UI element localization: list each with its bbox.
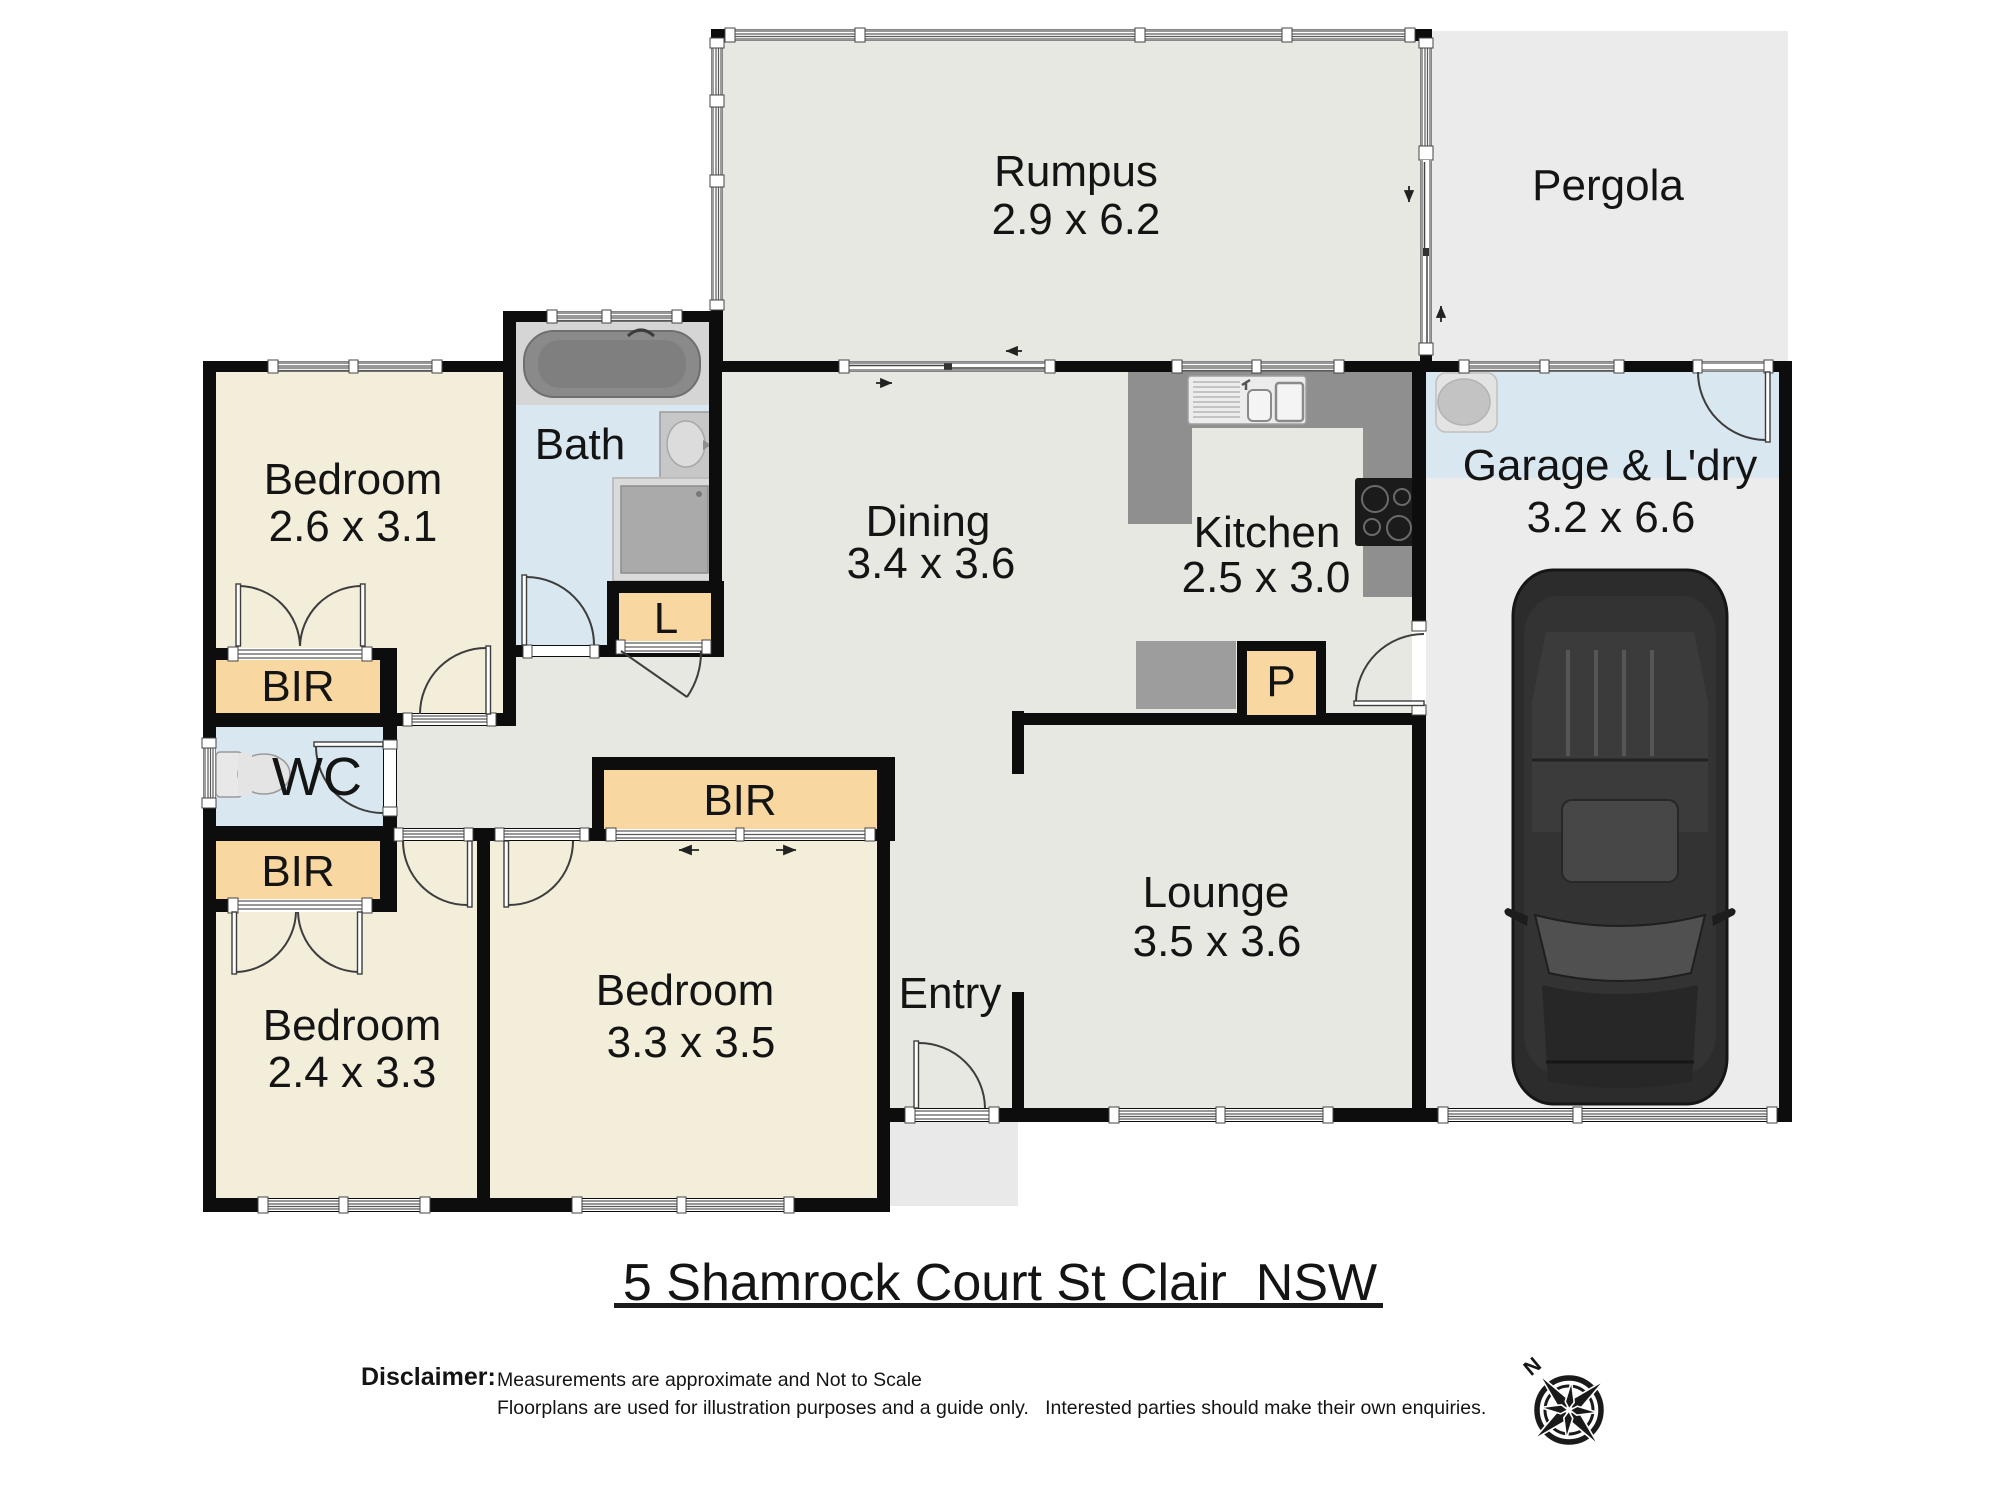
svg-text:Floorplans are used for illust: Floorplans are used for illustration pur… bbox=[497, 1397, 1486, 1419]
svg-text:BIR: BIR bbox=[261, 847, 334, 896]
svg-text:Bath: Bath bbox=[535, 420, 626, 469]
svg-text:WC: WC bbox=[272, 747, 362, 807]
svg-text:BIR: BIR bbox=[261, 662, 334, 711]
svg-text:Measurements are approximate a: Measurements are approximate and Not to … bbox=[497, 1369, 922, 1391]
svg-text:2.9 x 6.2: 2.9 x 6.2 bbox=[992, 195, 1161, 244]
svg-text:Kitchen: Kitchen bbox=[1194, 508, 1341, 557]
svg-text:Bedroom: Bedroom bbox=[263, 1001, 442, 1050]
svg-text:3.2 x 6.6: 3.2 x 6.6 bbox=[1527, 493, 1696, 542]
svg-text:3.3 x 3.5: 3.3 x 3.5 bbox=[607, 1018, 776, 1067]
svg-text:3.5 x 3.6: 3.5 x 3.6 bbox=[1133, 917, 1302, 966]
svg-text:Pergola: Pergola bbox=[1532, 161, 1684, 210]
svg-text:3.4 x 3.6: 3.4 x 3.6 bbox=[847, 539, 1016, 588]
svg-text:Rumpus: Rumpus bbox=[994, 147, 1158, 196]
svg-text:Bedroom: Bedroom bbox=[264, 455, 443, 504]
svg-text:P: P bbox=[1266, 657, 1295, 706]
svg-text:Entry: Entry bbox=[899, 969, 1002, 1018]
svg-text:Garage & L'dry: Garage & L'dry bbox=[1463, 441, 1758, 490]
svg-text:L: L bbox=[654, 594, 678, 643]
svg-text:Disclaimer:: Disclaimer: bbox=[361, 1363, 496, 1391]
svg-text:2.4 x 3.3: 2.4 x 3.3 bbox=[268, 1048, 437, 1097]
svg-text:2.5 x 3.0: 2.5 x 3.0 bbox=[1182, 553, 1351, 602]
svg-text:Lounge: Lounge bbox=[1143, 868, 1290, 917]
svg-text:2.6 x 3.1: 2.6 x 3.1 bbox=[269, 502, 438, 551]
svg-text:Bedroom: Bedroom bbox=[596, 966, 775, 1015]
svg-text:BIR: BIR bbox=[703, 776, 776, 825]
